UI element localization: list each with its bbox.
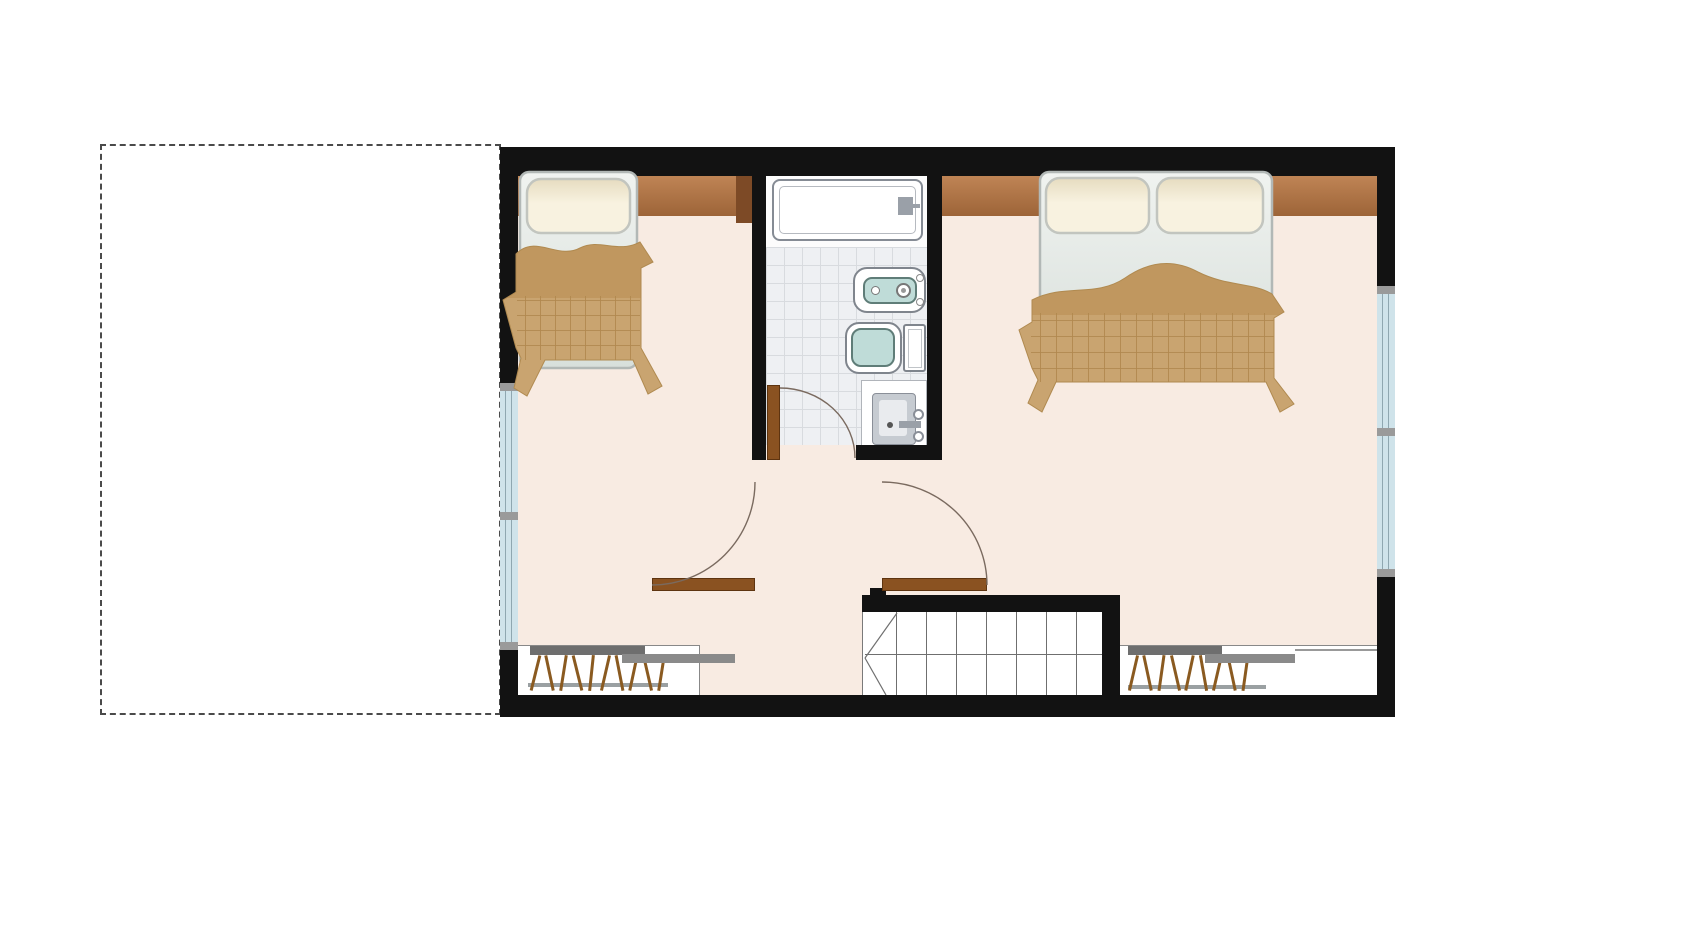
stairs-winder-lines	[863, 612, 1103, 695]
bathtub-inner-rim	[779, 186, 916, 234]
hall-door-left-arc	[652, 482, 755, 585]
toilet-tank-lid-line	[908, 329, 922, 368]
floor-plan	[0, 0, 1689, 950]
clothes-hanger	[572, 655, 584, 691]
bidet-faucet-core	[901, 288, 906, 293]
closet-right-slider-2	[1205, 654, 1295, 663]
double-bed	[1015, 160, 1300, 425]
window-right-cap-bottom	[1377, 569, 1395, 577]
window-right-cap-top	[1377, 286, 1395, 294]
stairs-side-wall	[1102, 595, 1120, 695]
clothes-hanger	[530, 655, 542, 691]
bathtub-faucet-spout	[912, 204, 920, 208]
window-right	[1377, 286, 1395, 577]
clothes-hanger	[1142, 655, 1152, 691]
bidet-knob-top	[916, 274, 924, 282]
bathtub	[772, 179, 923, 241]
bathroom-door-arc	[780, 388, 855, 458]
door-swing-arcs	[495, 375, 1055, 595]
clothes-hanger	[600, 655, 611, 691]
clothes-hanger	[1128, 655, 1139, 691]
clothes-hanger	[544, 655, 554, 691]
single-bed	[495, 160, 675, 410]
toilet-bowl	[851, 328, 895, 367]
closet-right-track-line	[1295, 649, 1377, 651]
window-left-cap-bottom	[500, 642, 518, 650]
staircase	[862, 612, 1102, 695]
clothes-hanger	[1170, 655, 1181, 691]
single-bed-pillow	[527, 179, 630, 233]
bathtub-faucet	[898, 197, 913, 215]
toilet-seat	[845, 322, 902, 374]
bidet-knob-bottom	[916, 298, 924, 306]
exterior-wall-bottom	[500, 695, 1395, 717]
clothes-hanger	[1184, 655, 1194, 691]
stairs-top-wall	[862, 595, 1120, 612]
bidet-drain	[871, 286, 880, 295]
clothes-hanger	[588, 655, 595, 691]
clothes-hanger	[559, 655, 568, 691]
double-bed-pillow-right	[1157, 178, 1263, 233]
clothes-hanger	[1158, 655, 1166, 691]
hall-door-right-arc	[882, 482, 987, 585]
double-bed-pillow-left	[1046, 178, 1149, 233]
closet-left-slider-2	[622, 654, 735, 663]
unbuilt-area-outline	[100, 144, 501, 715]
window-right-divider	[1377, 428, 1395, 436]
bidet	[853, 267, 926, 313]
toilet-tank	[903, 324, 926, 372]
wardrobe-band-left-cap	[736, 176, 753, 223]
